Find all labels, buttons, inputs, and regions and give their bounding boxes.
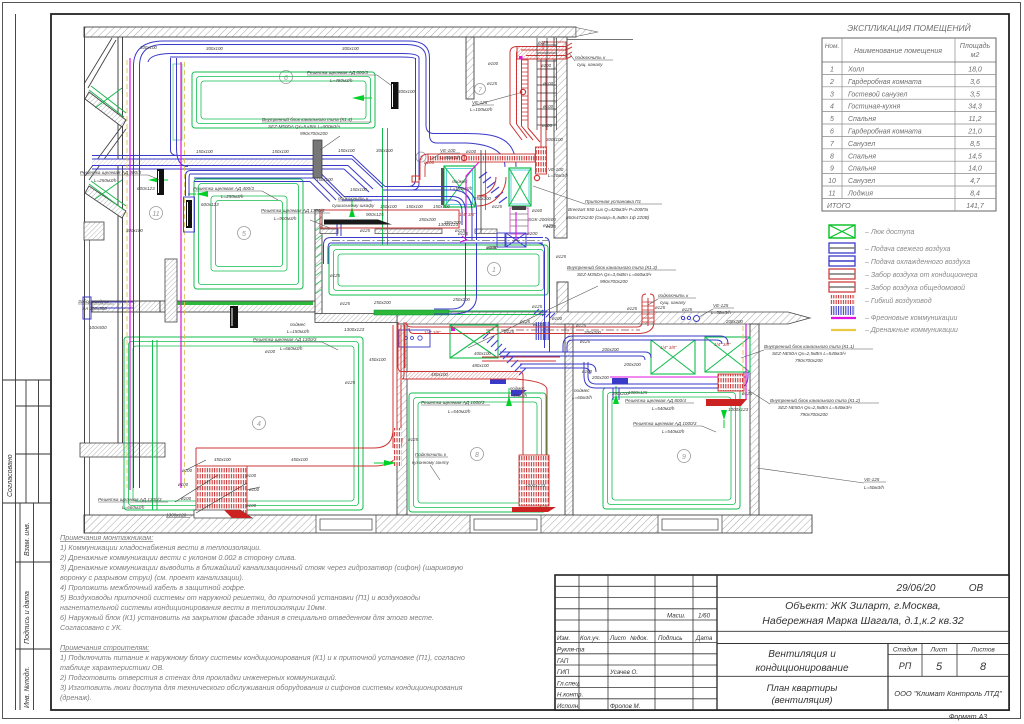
svg-text:11: 11 — [828, 191, 835, 198]
svg-text:м2: м2 — [971, 52, 980, 59]
svg-text:3,5: 3,5 — [970, 91, 980, 98]
svg-text:150х100: 150х100 — [316, 177, 333, 182]
svg-text:ø100: ø100 — [182, 468, 193, 473]
svg-text:300х100: 300х100 — [206, 46, 223, 51]
svg-text:Спальня: Спальня — [848, 166, 876, 173]
svg-text:ø125: ø125 — [492, 204, 503, 209]
svg-text:– Забор воздуха общедомовой: – Забор воздуха общедомовой — [864, 284, 965, 292]
svg-text:ø125: ø125 — [487, 81, 498, 86]
svg-text:1: 1 — [830, 67, 834, 74]
svg-text:L=150м3/h: L=150м3/h — [450, 186, 473, 191]
svg-text:21,0: 21,0 — [967, 129, 982, 136]
svg-text:ø100: ø100 — [424, 160, 435, 165]
svg-text:ø160: ø160 — [532, 208, 543, 213]
svg-text:подмес: подмес — [290, 322, 306, 327]
svg-text:Согласовано: Согласовано — [7, 454, 14, 497]
svg-text:Лист: Лист — [930, 647, 948, 654]
svg-text:кухонному зонту: кухонному зонту — [412, 460, 449, 465]
svg-text:300х100: 300х100 — [126, 228, 143, 233]
svg-text:200х200: 200х200 — [725, 319, 743, 324]
svg-text:ø100: ø100 — [533, 322, 544, 327]
svg-text:29/06/20: 29/06/20 — [896, 583, 936, 594]
svg-text:L=50м3/h: L=50м3/h — [864, 485, 884, 490]
svg-text:300х100: 300х100 — [546, 137, 563, 142]
svg-text:1000х125: 1000х125 — [628, 390, 648, 395]
svg-text:860х472х240 (Gнагр=5,4кВт 1ф 2: 860х472х240 (Gнагр=5,4кВт 1ф 220В) — [566, 215, 650, 220]
svg-text:Решетка щелевая АД 400/3: Решетка щелевая АД 400/3 — [193, 186, 254, 191]
svg-text:Решетка щелевая АД 1000/3: Решетка щелевая АД 1000/3 — [421, 400, 485, 405]
svg-text:ø125: ø125 — [408, 437, 419, 442]
svg-text:– Люк доступа: – Люк доступа — [864, 228, 914, 236]
svg-text:ø100: ø100 — [542, 123, 553, 128]
svg-text:подмес: подмес — [452, 179, 468, 184]
svg-text:1/4" 3/8": 1/4" 3/8" — [424, 330, 441, 335]
svg-text:Н.контр.: Н.контр. — [557, 692, 583, 699]
svg-text:8,5: 8,5 — [970, 141, 980, 148]
svg-text:таблице характеристики ОВ.: таблице характеристики ОВ. — [60, 663, 164, 672]
svg-text:Гардеробная комната: Гардеробная комната — [848, 78, 922, 86]
svg-text:Гостевой санузел: Гостевой санузел — [848, 90, 907, 98]
svg-text:ø125: ø125 — [345, 380, 356, 385]
svg-text:L=20м3/h: L=20м3/h — [548, 173, 568, 178]
svg-text:1/60: 1/60 — [698, 613, 711, 620]
svg-text:Решетка щелевая АД 800/4: Решетка щелевая АД 800/4 — [625, 398, 686, 403]
svg-text:SEZ-NE50A Qх=2,5кВт L=540м3/ч: SEZ-NE50A Qх=2,5кВт L=540м3/ч — [778, 405, 852, 410]
svg-text:ø125: ø125 — [580, 339, 591, 344]
svg-text:Объект: ЖК Зиларт, г.Москва,: Объект: ЖК Зиларт, г.Москва, — [785, 600, 941, 612]
svg-text:300х100: 300х100 — [140, 45, 157, 50]
svg-text:Примечания строителям:: Примечания строителям: — [60, 643, 149, 652]
svg-text:Холл: Холл — [847, 67, 864, 74]
svg-text:4) Проложить межблочный кабель: 4) Проложить межблочный кабель в защитно… — [60, 583, 246, 592]
svg-text:SEZ-NE50A Qх=2,5кВт L=540м3/ч: SEZ-NE50A Qх=2,5кВт L=540м3/ч — [772, 351, 846, 356]
svg-text:6) Наружный блок (К1) установи: 6) Наружный блок (К1) установить на закр… — [60, 613, 434, 622]
svg-text:Исполн.: Исполн. — [557, 703, 580, 710]
svg-text:250х200: 250х200 — [373, 300, 391, 305]
svg-text:SEZ-M50DA Qх=5,кВт L=900м3/ч: SEZ-M50DA Qх=5,кВт L=900м3/ч — [268, 124, 340, 129]
svg-text:Забор воздуха: Забор воздуха — [78, 299, 109, 304]
svg-text:L=50м3/h: L=50м3/h — [440, 155, 460, 160]
svg-text:– Гибкий воздуховод: – Гибкий воздуховод — [864, 297, 932, 305]
svg-text:Фролов М.: Фролов М. — [610, 703, 640, 710]
svg-text:480х100: 480х100 — [472, 363, 489, 368]
svg-text:Набережная Марка Шагала, д.1,к: Набережная Марка Шагала, д.1,к.2 кв.32 — [762, 615, 964, 627]
svg-text:600х123: 600х123 — [201, 202, 219, 207]
svg-text:подмес: подмес — [510, 386, 526, 391]
svg-text:Решетка щелевая АД 1300/3: Решетка щелевая АД 1300/3 — [253, 337, 317, 342]
svg-text:300х100: 300х100 — [376, 148, 393, 153]
svg-text:200х200: 200х200 — [623, 362, 641, 367]
svg-text:ИТОГО: ИТОГО — [827, 203, 851, 210]
svg-text:– Фреоновые коммуникации: – Фреоновые коммуникации — [864, 315, 958, 322]
svg-text:4: 4 — [830, 104, 834, 111]
svg-text:(вентиляция): (вентиляция) — [771, 695, 832, 706]
svg-text:Внутренний блок канального тип: Внутренний блок канального типа (К1.2) — [770, 397, 861, 403]
svg-text:5) Воздуховоды приточной систе: 5) Воздуховоды приточной системы от нару… — [60, 593, 421, 602]
svg-text:900х125: 900х125 — [366, 212, 384, 217]
svg-text:8: 8 — [475, 452, 479, 459]
svg-text:350х200: 350х200 — [444, 220, 461, 225]
svg-text:воронку с разрывом струи) (см.: воронку с разрывом струи) (см. проект ка… — [60, 573, 244, 582]
svg-text:Breezart 550 Lux Q=420м3/ч P=2: Breezart 550 Lux Q=420м3/ч P=200Па — [568, 207, 649, 212]
svg-text:SGK-200/600: SGK-200/600 — [528, 217, 556, 222]
svg-text:450х100: 450х100 — [369, 357, 386, 362]
svg-text:450х100: 450х100 — [291, 457, 308, 462]
svg-text:250х200: 250х200 — [473, 196, 491, 201]
svg-text:7: 7 — [478, 87, 482, 94]
svg-text:ø100: ø100 — [552, 316, 563, 321]
svg-text:подключить к: подключить к — [338, 196, 369, 201]
svg-text:Формат А3: Формат А3 — [949, 714, 987, 721]
svg-text:ø100: ø100 — [543, 104, 554, 109]
svg-text:4: 4 — [257, 421, 261, 428]
svg-text:300х100: 300х100 — [398, 89, 415, 94]
svg-text:ООО "Климат Контроль ЛТД": ООО "Климат Контроль ЛТД" — [894, 689, 1002, 698]
svg-text:1000х123: 1000х123 — [728, 407, 749, 412]
svg-text:ø125: ø125 — [546, 224, 557, 229]
svg-text:2: 2 — [829, 79, 834, 86]
svg-text:ø200: ø200 — [527, 231, 538, 236]
svg-text:ø100: ø100 — [466, 149, 477, 154]
svg-text:Лист: Лист — [609, 635, 626, 642]
svg-text:4,7: 4,7 — [970, 178, 981, 185]
svg-text:L=100м3/h: L=100м3/h — [470, 107, 493, 112]
svg-text:ø100: ø100 — [488, 61, 499, 66]
svg-text:Кол.уч.: Кол.уч. — [580, 635, 600, 642]
svg-text:Ном.: Ном. — [825, 43, 840, 50]
svg-text:– Забор воздуха от кондиционе: – Забор воздуха от кондиционера — [864, 271, 978, 279]
svg-text:L=900м3/h: L=900м3/h — [274, 216, 297, 221]
svg-text:ø100: ø100 — [246, 473, 257, 478]
svg-text:Внутренний блок канального тип: Внутренний блок канального типа (К1.4) — [262, 116, 353, 122]
svg-text:VE-125: VE-125 — [713, 303, 729, 308]
svg-text:нагнетательной системы кондици: нагнетательной системы кондиционирования… — [60, 603, 327, 612]
svg-text:Подключить к: Подключить к — [415, 452, 447, 457]
svg-text:3: 3 — [830, 91, 834, 98]
svg-text:– Подача свежего воздуха: – Подача свежего воздуха — [864, 245, 950, 253]
svg-text:L=540м3/h: L=540м3/h — [448, 409, 471, 414]
svg-text:9: 9 — [830, 166, 834, 173]
svg-text:Изм.: Изм. — [557, 635, 570, 642]
svg-text:150х100: 150х100 — [196, 149, 213, 154]
svg-text:ø100: ø100 — [181, 496, 192, 501]
svg-text:11: 11 — [152, 211, 159, 218]
svg-text:1/4" 3/8": 1/4" 3/8" — [714, 342, 731, 347]
svg-text:790х700х200: 790х700х200 — [800, 412, 828, 417]
svg-text:Подпись: Подпись — [658, 635, 683, 642]
svg-text:– Подача охлажденного воздуха: – Подача охлажденного воздуха — [864, 258, 970, 266]
svg-text:ø100: ø100 — [543, 81, 554, 86]
svg-text:L=540м3/h: L=540м3/h — [652, 406, 675, 411]
svg-text:SA 100x500: SA 100x500 — [82, 306, 107, 311]
svg-text:8: 8 — [980, 661, 987, 673]
svg-text:Решетка щелевая АД 400/3: Решетка щелевая АД 400/3 — [80, 170, 141, 175]
svg-text:Рукля-та: Рукля-та — [557, 647, 585, 654]
svg-text:Решетка щелевая АД 1700/3: Решетка щелевая АД 1700/3 — [261, 208, 325, 213]
svg-text:1) Коммуникации хладоснабжения: 1) Коммуникации хладоснабжения вести в т… — [60, 543, 261, 552]
svg-text:200х200: 200х200 — [591, 375, 609, 380]
svg-text:Дата: Дата — [695, 635, 713, 642]
svg-text:200х200: 200х200 — [583, 330, 601, 335]
svg-text:ø125: ø125 — [504, 329, 515, 334]
svg-text:VE-100: VE-100 — [440, 148, 456, 153]
svg-text:1000х123: 1000х123 — [525, 483, 546, 488]
svg-text:сушильному шкафу: сушильному шкафу — [332, 203, 375, 208]
svg-text:3) Дренажные коммуникации выво: 3) Дренажные коммуникации выводить в бли… — [60, 563, 464, 572]
svg-text:1300х123: 1300х123 — [166, 513, 187, 518]
svg-text:L=660м3/h: L=660м3/h — [122, 505, 145, 510]
svg-text:ø125: ø125 — [655, 305, 666, 310]
svg-text:1300х123: 1300х123 — [344, 327, 365, 332]
svg-text:подмес: подмес — [574, 388, 590, 393]
svg-text:Согласовано с УК.: Согласовано с УК. — [60, 623, 122, 632]
svg-text:Гл.спец.: Гл.спец. — [557, 680, 581, 687]
svg-text:– Дренажные коммуникации: – Дренажные коммуникации — [864, 327, 958, 334]
svg-text:5: 5 — [830, 116, 834, 123]
svg-text:9: 9 — [682, 454, 686, 461]
svg-text:Санузел: Санузел — [848, 141, 875, 148]
svg-text:150х100: 150х100 — [350, 187, 367, 192]
svg-text:Листов: Листов — [970, 647, 995, 654]
svg-text:14,0: 14,0 — [968, 166, 982, 173]
svg-text:100х500: 100х500 — [89, 325, 107, 330]
svg-text:790х700х200: 790х700х200 — [795, 358, 823, 363]
svg-text:L=60м3/h: L=60м3/h — [508, 393, 528, 398]
svg-text:ø100: ø100 — [178, 482, 189, 487]
svg-text:141,7: 141,7 — [966, 203, 985, 210]
svg-text:Масш.: Масш. — [667, 613, 686, 620]
svg-text:150х100: 150х100 — [406, 204, 423, 209]
svg-text:Решетка щелевая АД 1000/3: Решетка щелевая АД 1000/3 — [633, 421, 697, 426]
svg-text:L=480м3/h: L=480м3/h — [330, 78, 353, 83]
svg-text:350х200: 350х200 — [419, 217, 436, 222]
svg-text:5: 5 — [936, 661, 943, 673]
svg-text:План квартиры: План квартиры — [767, 683, 838, 694]
svg-text:ОВ: ОВ — [969, 583, 984, 594]
svg-text:10: 10 — [828, 178, 836, 185]
svg-text:Спальня: Спальня — [848, 116, 876, 123]
svg-text:L=660м3/h: L=660м3/h — [280, 346, 303, 351]
svg-text:Гардеробная комната: Гардеробная комната — [848, 128, 922, 136]
svg-text:Усачев О.: Усачев О. — [609, 669, 638, 676]
svg-text:Внутренний блок канального тип: Внутренний блок канального типа (К1.3) — [567, 264, 658, 270]
svg-text:300х100: 300х100 — [342, 46, 359, 51]
svg-text:3,6: 3,6 — [970, 79, 980, 86]
svg-text:Спальня: Спальня — [848, 153, 876, 160]
svg-text:11,2: 11,2 — [968, 116, 981, 123]
svg-text:ГИП: ГИП — [557, 669, 570, 676]
svg-text:Инв. №подл.: Инв. №подл. — [23, 666, 31, 708]
svg-text:8: 8 — [830, 153, 834, 160]
svg-text:Гостиная-кухня: Гостиная-кухня — [848, 104, 901, 111]
svg-text:990х700х200: 990х700х200 — [300, 131, 328, 136]
svg-text:подключить к: подключить к — [658, 293, 689, 298]
svg-text:ø125: ø125 — [360, 228, 371, 233]
svg-text:ø125: ø125 — [532, 304, 543, 309]
svg-text:№док.: №док. — [630, 635, 648, 642]
svg-text:ø100: ø100 — [249, 487, 260, 492]
svg-text:L=540м3/h: L=540м3/h — [662, 429, 685, 434]
svg-text:600х123: 600х123 — [137, 186, 155, 191]
svg-text:150х100: 150х100 — [272, 149, 289, 154]
svg-text:Площадь: Площадь — [960, 42, 991, 50]
svg-text:3) Изготовить люки доступа для: 3) Изготовить люки доступа для техническ… — [60, 683, 463, 692]
svg-text:Лоджия: Лоджия — [847, 190, 873, 198]
svg-text:150х100: 150х100 — [433, 204, 450, 209]
svg-text:L=50м3/h: L=50м3/h — [711, 310, 731, 315]
svg-text:Подпись и дата: Подпись и дата — [23, 591, 31, 644]
svg-text:L=250м3/h: L=250м3/h — [94, 178, 117, 183]
svg-text:990х700х200: 990х700х200 — [600, 279, 628, 284]
svg-text:SEZ-M35DA Qх=3,5кВт L=660м3/ч: SEZ-M35DA Qх=3,5кВт L=660м3/ч — [577, 272, 652, 277]
svg-text:Взам. инв.: Взам. инв. — [24, 522, 31, 556]
svg-text:Внутренний блок канального тип: Внутренний блок канального типа (К1.1) — [764, 343, 855, 349]
svg-text:РП: РП — [899, 661, 912, 671]
svg-text:VE-100: VE-100 — [548, 167, 564, 172]
svg-text:ø125: ø125 — [576, 323, 587, 328]
svg-text:450х100: 450х100 — [214, 457, 231, 462]
svg-text:ø100: ø100 — [246, 503, 257, 508]
svg-text:кондиционирование: кондиционирование — [755, 663, 849, 674]
svg-text:Решетка щелевая АД 1300/3: Решетка щелевая АД 1300/3 — [98, 497, 162, 502]
svg-text:400х100: 400х100 — [474, 351, 491, 356]
svg-text:1) Подключить питание к наружн: 1) Подключить питание к наружному блоку … — [60, 653, 465, 662]
svg-text:1/4" 3/8": 1/4" 3/8" — [660, 345, 677, 350]
svg-text:(дренаж).: (дренаж). — [60, 693, 92, 702]
svg-text:250х200: 250х200 — [452, 297, 470, 302]
svg-text:ø125: ø125 — [340, 301, 351, 306]
svg-text:ø100: ø100 — [541, 63, 552, 68]
svg-text:подключить к: подключить к — [575, 55, 606, 60]
svg-text:1/4" 3/8": 1/4" 3/8" — [459, 212, 476, 217]
svg-text:200х200: 200х200 — [611, 391, 629, 396]
svg-text:ø125: ø125 — [330, 273, 341, 278]
svg-text:6: 6 — [830, 129, 834, 136]
svg-text:ø125: ø125 — [627, 306, 638, 311]
svg-text:ø125: ø125 — [682, 307, 693, 312]
svg-text:сущ. каналу: сущ. каналу — [577, 62, 603, 67]
svg-text:ø100: ø100 — [265, 349, 276, 354]
svg-text:Приточная установка П1: Приточная установка П1 — [585, 199, 641, 204]
svg-text:ø125: ø125 — [455, 228, 466, 233]
svg-text:18,0: 18,0 — [968, 67, 982, 74]
svg-text:Наименование помещения: Наименование помещения — [854, 48, 942, 55]
svg-text:ø100: ø100 — [582, 369, 593, 374]
svg-text:1: 1 — [492, 267, 496, 274]
svg-text:2) Дренажные коммуникации вест: 2) Дренажные коммуникации вести с уклоно… — [59, 553, 296, 562]
svg-text:ГАП: ГАП — [557, 658, 569, 665]
svg-text:Вентиляция и: Вентиляция и — [768, 649, 836, 660]
svg-text:5: 5 — [242, 231, 246, 238]
svg-text:L=250м3/h: L=250м3/h — [221, 194, 244, 199]
svg-text:Решетка щелевая АД 800/3: Решетка щелевая АД 800/3 — [307, 70, 368, 75]
svg-text:14,5: 14,5 — [968, 153, 982, 160]
svg-text:ø125: ø125 — [520, 319, 531, 324]
svg-text:450х100: 450х100 — [431, 372, 448, 377]
svg-text:8,4: 8,4 — [970, 191, 980, 198]
svg-text:150х100: 150х100 — [380, 204, 397, 209]
svg-text:2) Подготовить отверстия в сте: 2) Подготовить отверстия в стенах для пр… — [59, 673, 337, 682]
svg-text:200х200: 200х200 — [601, 347, 619, 352]
svg-text:34,3: 34,3 — [968, 104, 982, 111]
svg-text:ЭКСПЛИКАЦИЯ ПОМЕЩЕНИЙ: ЭКСПЛИКАЦИЯ ПОМЕЩЕНИЙ — [847, 22, 971, 33]
svg-text:150х100: 150х100 — [338, 148, 355, 153]
svg-text:ø200: ø200 — [486, 245, 497, 250]
svg-text:VE-125: VE-125 — [864, 477, 880, 482]
svg-text:ø125: ø125 — [556, 254, 567, 259]
svg-text:L=150м3/h: L=150м3/h — [287, 329, 310, 334]
svg-text:L=60м3/h: L=60м3/h — [572, 395, 592, 400]
svg-text:ø125: ø125 — [538, 40, 549, 45]
svg-text:Примечания монтажникам:: Примечания монтажникам: — [60, 533, 153, 542]
svg-text:Санузел: Санузел — [848, 178, 875, 185]
svg-text:Стадия: Стадия — [893, 646, 918, 654]
